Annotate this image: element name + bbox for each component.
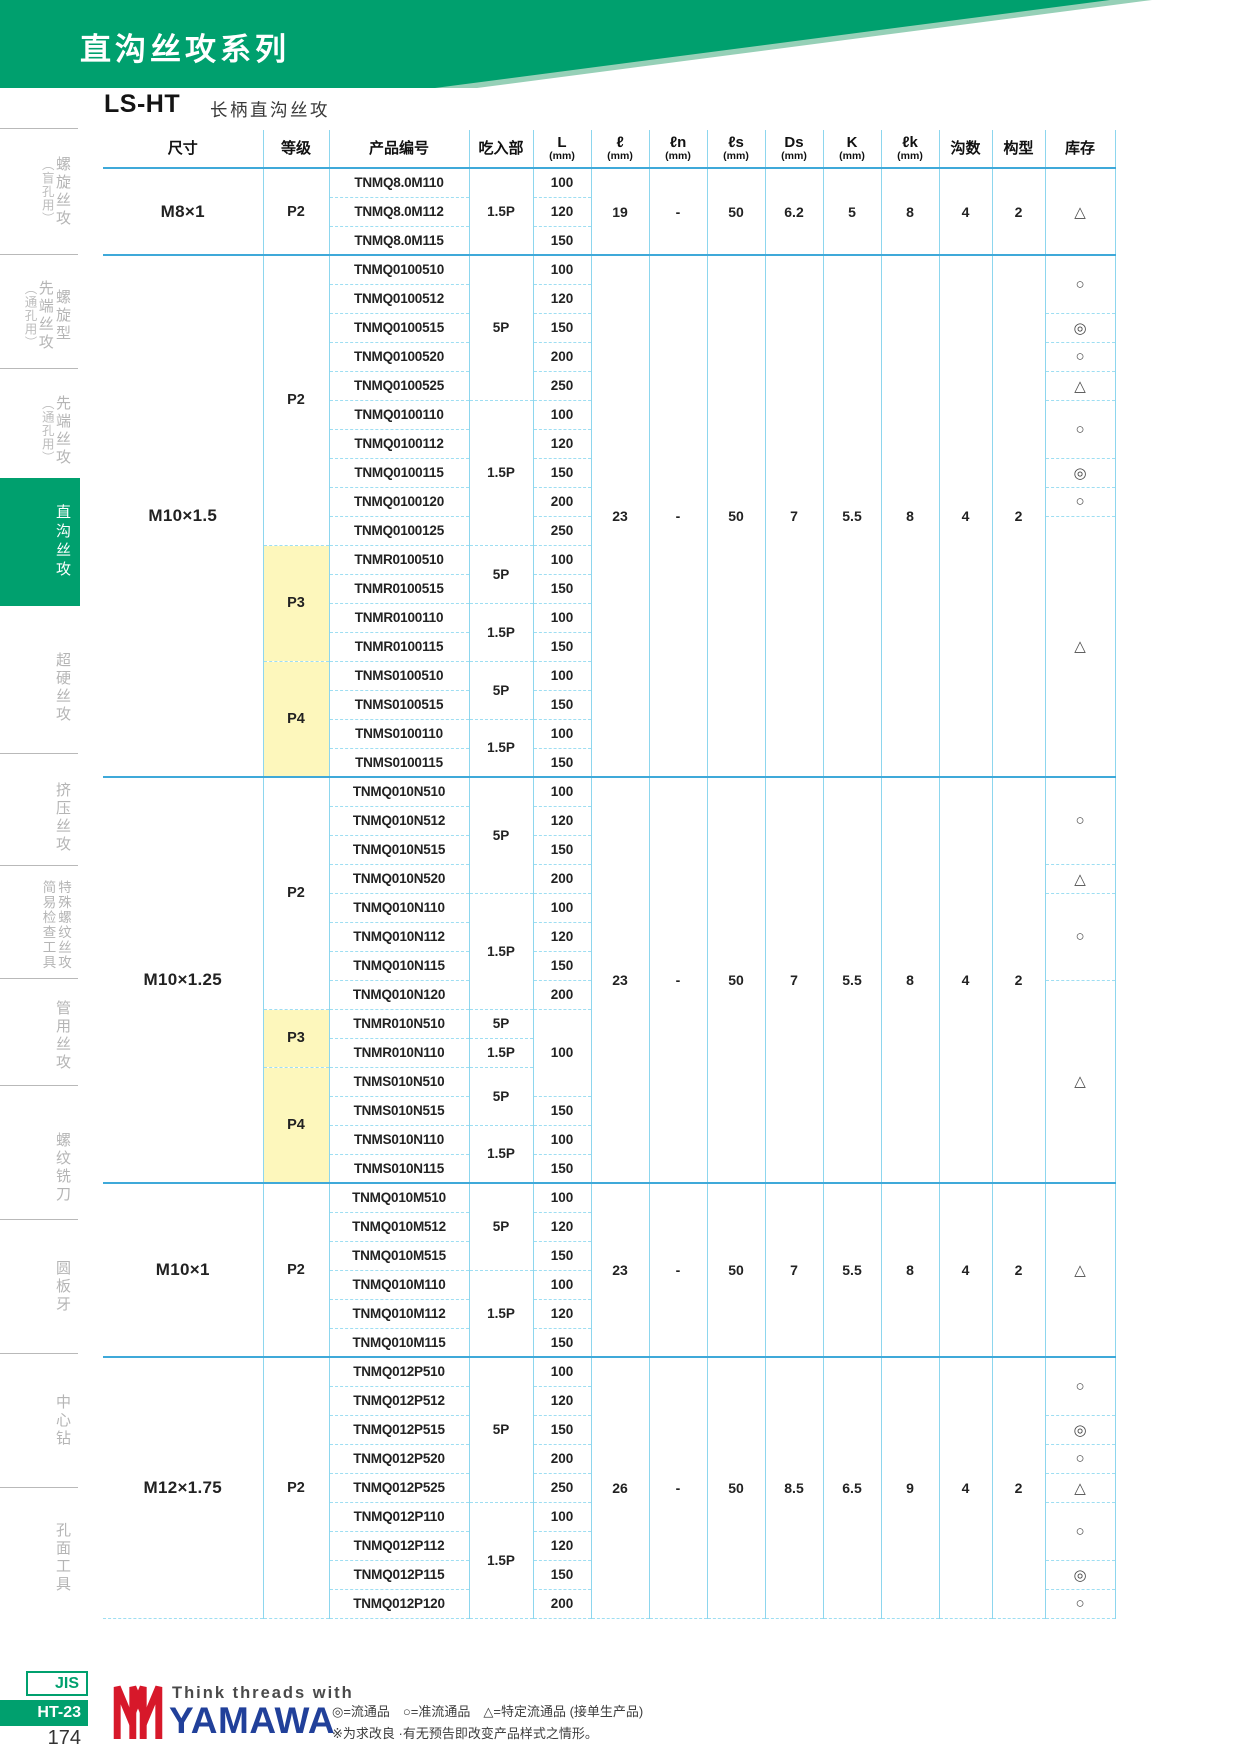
sidebar-item-straight-flute-taps[interactable]: 直沟丝攻 (0, 478, 80, 606)
product-number-cell: TNMQ010M512 (329, 1212, 469, 1241)
overall-length-cell: 200 (533, 864, 591, 893)
overall-length-cell: 150 (533, 226, 591, 255)
column-header: 等级 (263, 130, 329, 168)
product-number-cell: TNMQ0100115 (329, 458, 469, 487)
overall-length-cell: 100 (533, 545, 591, 574)
sidebar-item-label: （通孔用） (22, 282, 36, 350)
val-ds: 7 (765, 1183, 823, 1357)
val-ds: 8.5 (765, 1357, 823, 1618)
product-number-cell: TNMQ0100515 (329, 313, 469, 342)
product-number-cell: TNMQ012P120 (329, 1589, 469, 1618)
header-row: 尺寸等级产品编号吃入部L(mm)ℓ(mm)ℓn(mm)ℓs(mm)Ds(mm)K… (103, 130, 1115, 168)
product-number-cell: TNMQ010M115 (329, 1328, 469, 1357)
column-header: 吃入部 (469, 130, 533, 168)
chamfer-cell: 1.5P (469, 400, 533, 545)
val-k: 5 (823, 168, 881, 255)
product-number-cell: TNMQ010N120 (329, 980, 469, 1009)
product-number-cell: TNMQ012P112 (329, 1531, 469, 1560)
grade-cell: P2 (263, 1183, 329, 1357)
product-number-cell: TNMQ8.0M115 (329, 226, 469, 255)
val-lk: 8 (881, 255, 939, 777)
sidebar-separator (0, 865, 78, 866)
product-number-cell: TNMQ010M110 (329, 1270, 469, 1299)
product-number-cell: TNMS0100110 (329, 719, 469, 748)
table-row: M10×1.5P2TNMQ01005105P10023-5075.5842○ (103, 255, 1115, 284)
overall-length-cell: 120 (533, 1531, 591, 1560)
product-number-cell: TNMQ010N110 (329, 893, 469, 922)
val-k: 6.5 (823, 1357, 881, 1618)
chamfer-cell: 1.5P (469, 1038, 533, 1067)
val-lk: 8 (881, 777, 939, 1183)
overall-length-cell: 120 (533, 284, 591, 313)
column-header: 库存 (1045, 130, 1115, 168)
column-header: K(mm) (823, 130, 881, 168)
product-number-cell: TNMS010N515 (329, 1096, 469, 1125)
column-header: ℓk(mm) (881, 130, 939, 168)
product-number-cell: TNMQ0100112 (329, 429, 469, 458)
chamfer-cell: 5P (469, 1067, 533, 1125)
overall-length-cell: 150 (533, 1328, 591, 1357)
product-number-cell: TNMS010N510 (329, 1067, 469, 1096)
stock-cell: ○ (1045, 400, 1115, 458)
val-ds: 7 (765, 777, 823, 1183)
footnote: ※为求改良 ·有无预告即改变产品样式之情形。 (332, 1723, 598, 1742)
overall-length-cell: 150 (533, 1096, 591, 1125)
sidebar-item-hole-surface-tools[interactable]: 孔面工具 (0, 1512, 80, 1604)
overall-length-cell: 150 (533, 951, 591, 980)
stock-cell: △ (1045, 980, 1115, 1183)
val-ls: 50 (707, 168, 765, 255)
product-number-cell: TNMQ010N115 (329, 951, 469, 980)
sidebar-item-label: 圆板牙 (54, 1260, 71, 1314)
val-form: 2 (992, 168, 1045, 255)
product-number-cell: TNMQ010M112 (329, 1299, 469, 1328)
val-flutes: 4 (939, 1357, 992, 1618)
product-number-cell: TNMQ012P512 (329, 1386, 469, 1415)
chamfer-cell: 1.5P (469, 168, 533, 255)
overall-length-cell: 120 (533, 1212, 591, 1241)
chamfer-cell: 1.5P (469, 1125, 533, 1183)
product-number-cell: TNMS010N115 (329, 1154, 469, 1183)
overall-length-cell: 120 (533, 922, 591, 951)
section-code-badge: HT-23 (0, 1700, 88, 1726)
sidebar-item-label: 管用丝攻 (54, 1000, 71, 1072)
val-form: 2 (992, 1183, 1045, 1357)
jis-badge: JIS (26, 1671, 88, 1696)
sidebar-separator (0, 978, 78, 979)
grade-cell: P2 (263, 168, 329, 255)
overall-length-cell: 100 (533, 777, 591, 806)
overall-length-cell: 120 (533, 1299, 591, 1328)
overall-length-cell: 120 (533, 1386, 591, 1415)
sidebar-item-label: （通孔用） (39, 397, 53, 465)
overall-length-cell: 150 (533, 690, 591, 719)
val-ln: - (649, 1183, 707, 1357)
size-cell: M8×1 (103, 168, 263, 255)
sidebar-item-label: 超硬丝攻 (54, 652, 71, 724)
table-row: M8×1P2TNMQ8.0M1101.5P10019-506.25842△ (103, 168, 1115, 197)
val-ls: 50 (707, 1357, 765, 1618)
product-number-cell: TNMR010N110 (329, 1038, 469, 1067)
stock-cell: △ (1045, 371, 1115, 400)
sidebar-item-thread-mills[interactable]: 螺纹铣刀 (0, 1122, 80, 1214)
table-row: M10×1P2TNMQ010M5105P10023-5075.5842△ (103, 1183, 1115, 1212)
val-l: 26 (591, 1357, 649, 1618)
sidebar-item-label: （盲孔用） (39, 158, 53, 226)
sidebar-item-spiral-pointed-taps-through[interactable]: 螺旋型先端丝攻（通孔用） (0, 268, 80, 363)
chamfer-cell: 5P (469, 545, 533, 603)
product-number-cell: TNMR0100510 (329, 545, 469, 574)
val-lk: 9 (881, 1357, 939, 1618)
column-header: ℓn(mm) (649, 130, 707, 168)
sidebar-separator (0, 1219, 78, 1220)
product-number-cell: TNMQ0100110 (329, 400, 469, 429)
stock-cell: ◎ (1045, 1415, 1115, 1444)
table-row: M10×1.25P2TNMQ010N5105P10023-5075.5842○ (103, 777, 1115, 806)
overall-length-cell: 120 (533, 197, 591, 226)
sidebar-separator (0, 1353, 78, 1354)
sidebar-item-round-dies[interactable]: 圆板牙 (0, 1252, 80, 1322)
val-ln: - (649, 1357, 707, 1618)
overall-length-cell: 100 (533, 255, 591, 284)
stock-cell: ◎ (1045, 458, 1115, 487)
grade-cell: P3 (263, 1009, 329, 1067)
overall-length-cell: 120 (533, 806, 591, 835)
product-number-cell: TNMQ010N510 (329, 777, 469, 806)
overall-length-cell: 100 (533, 893, 591, 922)
overall-length-cell: 150 (533, 313, 591, 342)
sidebar-item-label: 先端丝攻 (37, 280, 54, 352)
series-title: 直沟丝攻系列 (80, 24, 290, 69)
catalog-page: 直沟丝攻系列 LS-HT 长柄直沟丝攻 螺旋丝攻（盲孔用）螺旋型先端丝攻（通孔用… (0, 0, 1240, 1754)
product-number-cell: TNMQ8.0M110 (329, 168, 469, 197)
product-number-cell: TNMS0100510 (329, 661, 469, 690)
column-header: Ds(mm) (765, 130, 823, 168)
product-number-cell: TNMQ8.0M112 (329, 197, 469, 226)
overall-length-cell: 250 (533, 1473, 591, 1502)
val-flutes: 4 (939, 168, 992, 255)
overall-length-cell: 150 (533, 1415, 591, 1444)
val-form: 2 (992, 1357, 1045, 1618)
overall-length-cell: 250 (533, 516, 591, 545)
stock-cell: ○ (1045, 1357, 1115, 1415)
chamfer-cell: 5P (469, 255, 533, 400)
grade-cell: P3 (263, 545, 329, 661)
sidebar-item-label: 先端丝攻 (54, 395, 71, 467)
sidebar-item-label: 螺旋型 (54, 289, 71, 343)
val-l: 23 (591, 1183, 649, 1357)
stock-cell: ○ (1045, 255, 1115, 313)
column-header: ℓ(mm) (591, 130, 649, 168)
overall-length-cell: 100 (533, 400, 591, 429)
product-number-cell: TNMQ012P520 (329, 1444, 469, 1473)
overall-length-cell: 150 (533, 835, 591, 864)
table-wrapper: 尺寸等级产品编号吃入部L(mm)ℓ(mm)ℓn(mm)ℓs(mm)Ds(mm)K… (103, 130, 1116, 1619)
stock-cell: ○ (1045, 1502, 1115, 1560)
sidebar-item-carbide-taps[interactable]: 超硬丝攻 (0, 640, 80, 735)
sidebar-item-label: 简易检查工具 (40, 880, 56, 970)
sidebar-item-special-thread-taps-gauges[interactable]: 特殊螺纹丝攻简易检查工具 (0, 875, 80, 975)
product-number-cell: TNMQ010N515 (329, 835, 469, 864)
product-number-cell: TNMQ010N112 (329, 922, 469, 951)
overall-length-cell: 150 (533, 1241, 591, 1270)
overall-length-cell: 250 (533, 371, 591, 400)
product-number-cell: TNMQ0100120 (329, 487, 469, 516)
val-ds: 7 (765, 255, 823, 777)
page-number: 174 (0, 1727, 88, 1750)
val-flutes: 4 (939, 255, 992, 777)
overall-length-cell: 100 (533, 1502, 591, 1531)
brand-name: YAMAWA (169, 1700, 335, 1742)
stock-cell: ○ (1045, 777, 1115, 864)
overall-length-cell: 100 (533, 1270, 591, 1299)
val-l: 19 (591, 168, 649, 255)
product-number-cell: TNMR0100515 (329, 574, 469, 603)
overall-length-cell: 150 (533, 748, 591, 777)
sidebar-item-label: 孔面工具 (54, 1522, 71, 1594)
chamfer-cell: 5P (469, 661, 533, 719)
sidebar-item-label: 螺旋丝攻 (54, 156, 71, 228)
val-lk: 8 (881, 168, 939, 255)
product-number-cell: TNMQ0100512 (329, 284, 469, 313)
overall-length-cell: 100 (533, 603, 591, 632)
product-number-cell: TNMQ0100125 (329, 516, 469, 545)
column-header: L(mm) (533, 130, 591, 168)
val-form: 2 (992, 255, 1045, 777)
overall-length-cell: 150 (533, 574, 591, 603)
grade-cell: P2 (263, 777, 329, 1009)
yamawa-logo-icon (112, 1681, 164, 1745)
product-number-cell: TNMQ012P515 (329, 1415, 469, 1444)
overall-length-cell: 100 (533, 1357, 591, 1386)
overall-length-cell: 100 (533, 1183, 591, 1212)
stock-legend: ◎=流通品 ○=准流通品 △=特定流通品 (接单生产品) (332, 1701, 643, 1720)
chamfer-cell: 1.5P (469, 719, 533, 777)
column-header: 构型 (992, 130, 1045, 168)
product-number-cell: TNMS0100515 (329, 690, 469, 719)
product-number-cell: TNMQ010N512 (329, 806, 469, 835)
sidebar-item-forming-taps[interactable]: 挤压丝攻 (0, 772, 80, 864)
sidebar-item-label: 直沟丝攻 (54, 504, 71, 580)
product-number-cell: TNMR0100110 (329, 603, 469, 632)
chamfer-cell: 5P (469, 1009, 533, 1038)
stock-cell: ○ (1045, 487, 1115, 516)
stock-cell: ◎ (1045, 313, 1115, 342)
stock-cell: △ (1045, 1183, 1115, 1357)
overall-length-cell: 100 (533, 1125, 591, 1154)
product-table: 尺寸等级产品编号吃入部L(mm)ℓ(mm)ℓn(mm)ℓs(mm)Ds(mm)K… (103, 130, 1116, 1619)
sidebar-item-label: 挤压丝攻 (54, 782, 71, 854)
val-ln: - (649, 777, 707, 1183)
overall-length-cell: 150 (533, 458, 591, 487)
stock-cell: △ (1045, 864, 1115, 893)
product-number-cell: TNMS0100115 (329, 748, 469, 777)
sidebar-separator (0, 1487, 78, 1488)
val-flutes: 4 (939, 1183, 992, 1357)
stock-cell: ○ (1045, 1589, 1115, 1618)
grade-cell: P2 (263, 255, 329, 545)
overall-length-cell: 120 (533, 429, 591, 458)
product-number-cell: TNMQ0100525 (329, 371, 469, 400)
overall-length-cell: 200 (533, 487, 591, 516)
val-ls: 50 (707, 1183, 765, 1357)
sidebar-item-label: 中心钻 (54, 1394, 71, 1448)
overall-length-cell: 150 (533, 632, 591, 661)
overall-length-cell: 200 (533, 1589, 591, 1618)
product-number-cell: TNMQ012P110 (329, 1502, 469, 1531)
stock-cell: △ (1045, 516, 1115, 777)
stock-cell: △ (1045, 1473, 1115, 1502)
sidebar-separator (0, 128, 78, 129)
product-number-cell: TNMR0100115 (329, 632, 469, 661)
product-number-cell: TNMQ010M515 (329, 1241, 469, 1270)
column-header: 尺寸 (103, 130, 263, 168)
sidebar-separator (0, 368, 78, 369)
chamfer-cell: 5P (469, 1357, 533, 1502)
sidebar-separator (0, 254, 78, 255)
val-form: 2 (992, 777, 1045, 1183)
product-number-cell: TNMQ012P525 (329, 1473, 469, 1502)
product-number-cell: TNMQ012P115 (329, 1560, 469, 1589)
stock-cell: ○ (1045, 342, 1115, 371)
overall-length-cell: 150 (533, 1560, 591, 1589)
val-flutes: 4 (939, 777, 992, 1183)
product-number-cell: TNMR010N510 (329, 1009, 469, 1038)
overall-length-cell: 200 (533, 980, 591, 1009)
size-cell: M10×1.5 (103, 255, 263, 777)
sidebar-item-pipe-taps[interactable]: 管用丝攻 (0, 992, 80, 1080)
product-number-cell: TNMQ010M510 (329, 1183, 469, 1212)
overall-length-cell: 100 (533, 168, 591, 197)
sidebar-item-label: 特殊螺纹丝攻 (55, 880, 71, 970)
grade-cell: P4 (263, 661, 329, 777)
val-l: 23 (591, 255, 649, 777)
val-ds: 6.2 (765, 168, 823, 255)
stock-cell: ○ (1045, 893, 1115, 980)
product-number-cell: TNMQ010N520 (329, 864, 469, 893)
sidebar-item-pointed-taps-through[interactable]: 先端丝攻（通孔用） (0, 385, 80, 477)
chamfer-cell: 5P (469, 777, 533, 893)
sidebar-separator (0, 753, 78, 754)
val-ln: - (649, 168, 707, 255)
sidebar-separator (0, 1085, 78, 1086)
sidebar-item-label: 螺纹铣刀 (54, 1132, 71, 1204)
overall-length-cell: 100 (533, 1009, 591, 1096)
sidebar-item-spiral-taps-blind[interactable]: 螺旋丝攻（盲孔用） (0, 142, 80, 242)
column-header: 沟数 (939, 130, 992, 168)
column-header: 产品编号 (329, 130, 469, 168)
val-k: 5.5 (823, 777, 881, 1183)
stock-cell: △ (1045, 168, 1115, 255)
sidebar-nav: 螺旋丝攻（盲孔用）螺旋型先端丝攻（通孔用）先端丝攻（通孔用）直沟丝攻超硬丝攻挤压… (0, 0, 80, 1754)
column-header: ℓs(mm) (707, 130, 765, 168)
overall-length-cell: 200 (533, 342, 591, 371)
grade-cell: P4 (263, 1067, 329, 1183)
val-k: 5.5 (823, 1183, 881, 1357)
grade-cell: P2 (263, 1357, 329, 1618)
model-code: LS-HT (104, 90, 180, 119)
sidebar-item-center-drills[interactable]: 中心钻 (0, 1386, 80, 1456)
val-ls: 50 (707, 777, 765, 1183)
size-cell: M10×1 (103, 1183, 263, 1357)
model-description: 长柄直沟丝攻 (210, 97, 330, 122)
stock-cell: ○ (1045, 1444, 1115, 1473)
table-row: M12×1.75P2TNMQ012P5105P10026-508.56.5942… (103, 1357, 1115, 1386)
chamfer-cell: 1.5P (469, 1502, 533, 1618)
size-cell: M12×1.75 (103, 1357, 263, 1618)
val-l: 23 (591, 777, 649, 1183)
overall-length-cell: 200 (533, 1444, 591, 1473)
chamfer-cell: 1.5P (469, 603, 533, 661)
val-lk: 8 (881, 1183, 939, 1357)
chamfer-cell: 5P (469, 1183, 533, 1270)
stock-cell: ◎ (1045, 1560, 1115, 1589)
overall-length-cell: 150 (533, 1154, 591, 1183)
val-k: 5.5 (823, 255, 881, 777)
product-number-cell: TNMQ0100520 (329, 342, 469, 371)
overall-length-cell: 100 (533, 661, 591, 690)
chamfer-cell: 1.5P (469, 893, 533, 1009)
size-cell: M10×1.25 (103, 777, 263, 1183)
overall-length-cell: 100 (533, 719, 591, 748)
val-ln: - (649, 255, 707, 777)
chamfer-cell: 1.5P (469, 1270, 533, 1357)
product-number-cell: TNMQ0100510 (329, 255, 469, 284)
val-ls: 50 (707, 255, 765, 777)
product-number-cell: TNMS010N110 (329, 1125, 469, 1154)
product-number-cell: TNMQ012P510 (329, 1357, 469, 1386)
